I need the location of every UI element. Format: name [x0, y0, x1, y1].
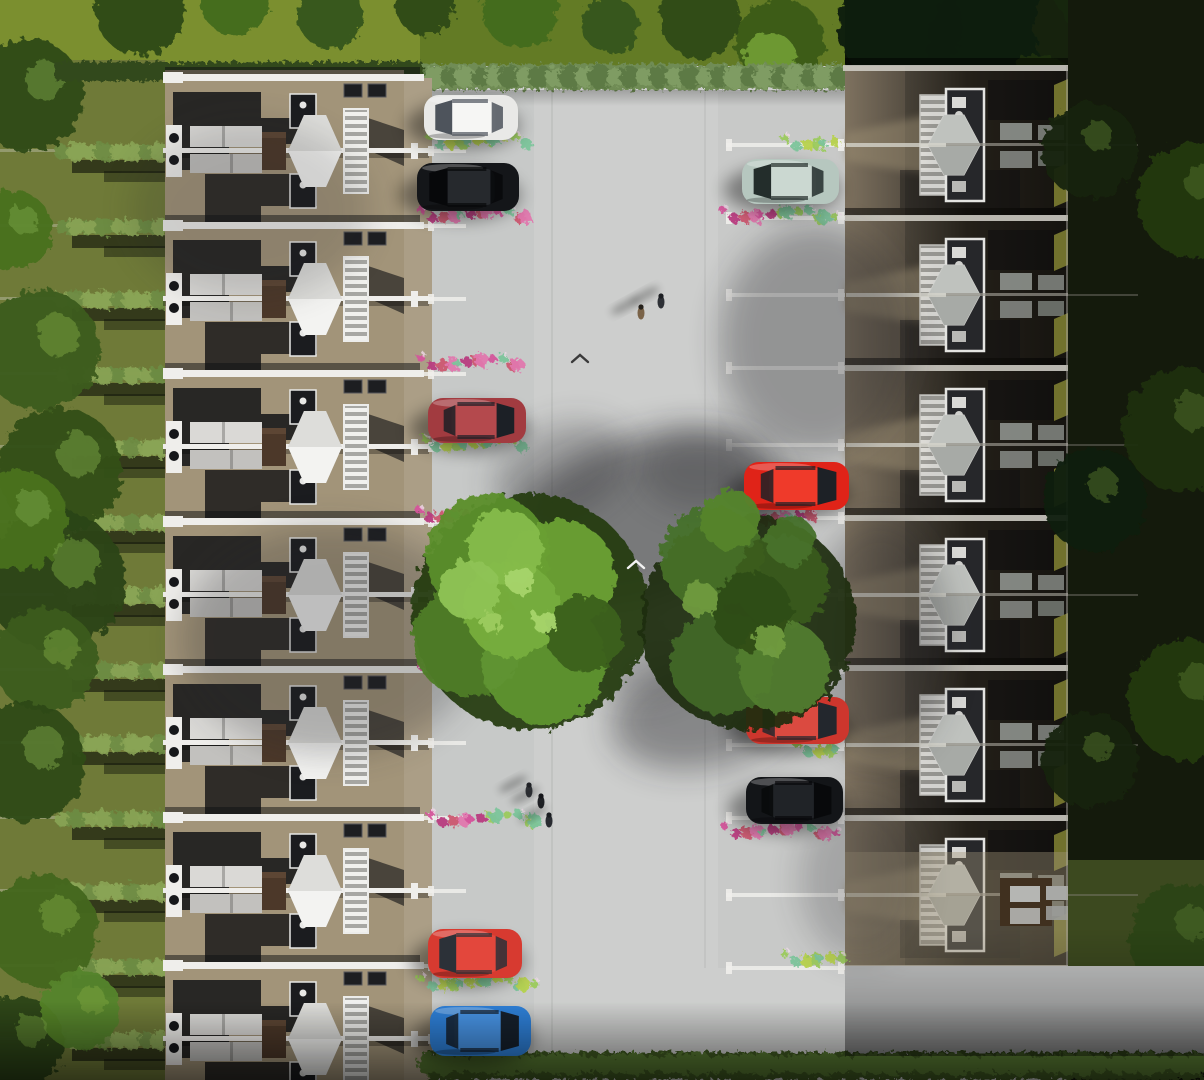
street-tree-left [412, 494, 648, 730]
aerial-site-render [0, 0, 1204, 1080]
corner-vignette [845, 930, 1204, 1056]
site-plan-svg [0, 0, 1204, 1080]
canopy [412, 494, 648, 730]
